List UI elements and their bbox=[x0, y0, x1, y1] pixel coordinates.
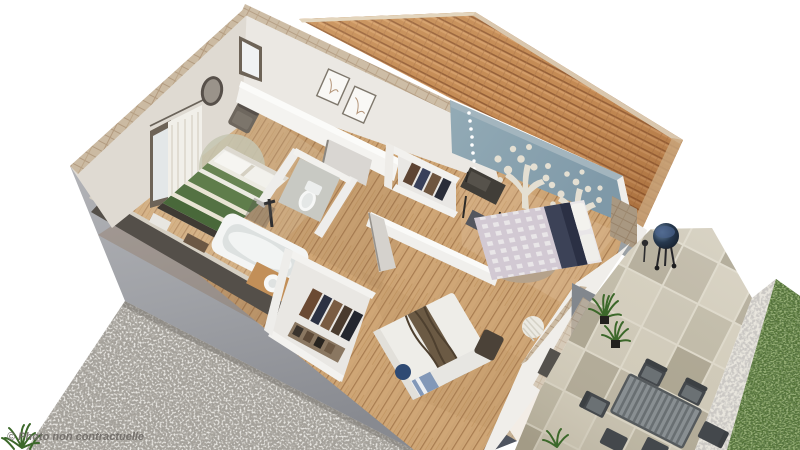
svg-text:© Photo non contractuelle: © Photo non contractuelle bbox=[7, 431, 144, 443]
